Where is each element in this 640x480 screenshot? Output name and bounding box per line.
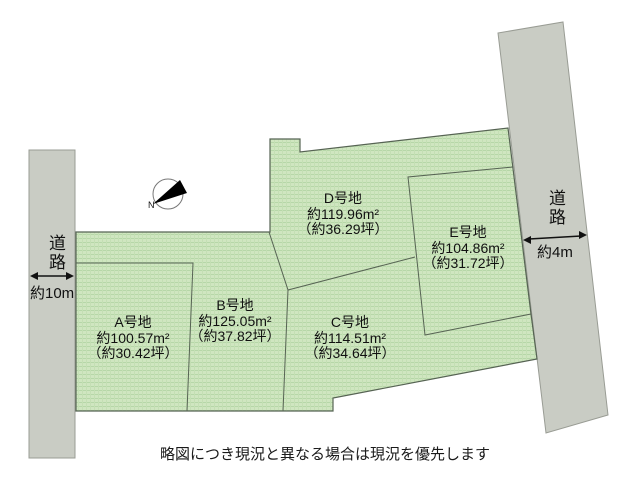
lot-c-area-sqm: 約114.51m² [304, 330, 395, 346]
lot-label-d: D号地 約119.96m² （約36.29坪） [297, 191, 388, 238]
lot-a-area-tsubo: （約30.42坪） [87, 346, 178, 362]
lot-label-c: C号地 約114.51m² （約34.64坪） [304, 315, 395, 362]
lot-d-area-tsubo: （約36.29坪） [297, 222, 388, 238]
lot-c-name: C号地 [304, 315, 395, 331]
land-plot-diagram: N 道路 約10m 道路 約4m A号地 約100.57m² （約30.42坪）… [0, 0, 640, 480]
lot-c-area-tsubo: （約34.64坪） [304, 346, 395, 362]
lot-e-area-sqm: 約104.86m² [422, 240, 513, 256]
road-right-label: 道路 [543, 189, 568, 227]
compass-icon: N [148, 179, 187, 210]
lot-b-name: B号地 [189, 298, 280, 314]
road-left-shape [29, 150, 75, 458]
road-left-width-label: 約10m [30, 282, 74, 303]
road-right-width-label: 約4m [537, 241, 573, 262]
lot-d-name: D号地 [297, 191, 388, 207]
lot-label-e: E号地 約104.86m² （約31.72坪） [422, 225, 513, 272]
lot-e-name: E号地 [422, 225, 513, 241]
lot-d-area-sqm: 約119.96m² [297, 206, 388, 222]
lot-b-area-tsubo: （約37.82坪） [189, 329, 280, 345]
plot-map-canvas: N [0, 0, 640, 480]
lot-a-area-sqm: 約100.57m² [87, 330, 178, 346]
lot-b-area-sqm: 約125.05m² [189, 313, 280, 329]
lot-label-a: A号地 約100.57m² （約30.42坪） [87, 315, 178, 362]
lot-label-b: B号地 約125.05m² （約37.82坪） [189, 298, 280, 345]
lot-a-name: A号地 [87, 315, 178, 331]
road-left-label: 道路 [43, 234, 68, 272]
lot-e-area-tsubo: （約31.72坪） [422, 256, 513, 272]
compass-north-label: N [148, 200, 155, 210]
disclaimer-text: 略図につき現況と異なる場合は現況を優先します [160, 443, 490, 464]
